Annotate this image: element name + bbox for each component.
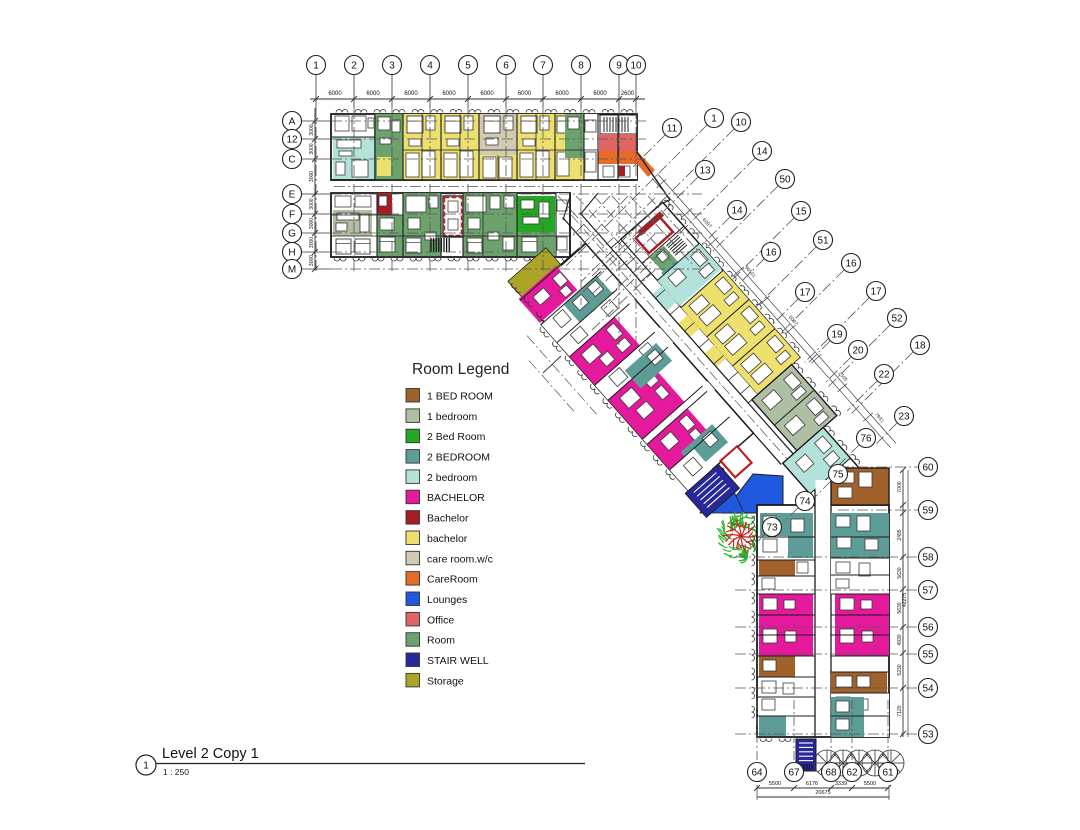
svg-text:7120: 7120 — [897, 705, 903, 716]
svg-text:76: 76 — [860, 434, 872, 445]
svg-text:53: 53 — [922, 730, 934, 741]
svg-text:62: 62 — [846, 768, 858, 779]
svg-text:4: 4 — [427, 61, 433, 72]
svg-text:BACHELOR: BACHELOR — [427, 492, 485, 504]
svg-text:1 bedroom: 1 bedroom — [427, 411, 477, 423]
svg-text:Lounges: Lounges — [427, 594, 467, 606]
svg-text:6000: 6000 — [442, 91, 456, 97]
svg-text:64: 64 — [751, 768, 763, 779]
svg-text:74: 74 — [799, 497, 811, 508]
svg-text:6000: 6000 — [593, 91, 607, 97]
svg-text:68: 68 — [825, 768, 837, 779]
svg-text:3339: 3339 — [835, 781, 847, 787]
svg-text:3: 3 — [389, 61, 395, 72]
svg-text:14: 14 — [731, 206, 743, 217]
svg-text:6000: 6000 — [555, 91, 569, 97]
svg-text:10: 10 — [735, 118, 747, 129]
svg-text:16: 16 — [845, 259, 857, 270]
svg-text:STAIR WELL: STAIR WELL — [427, 655, 489, 667]
svg-text:Storage: Storage — [427, 675, 464, 687]
svg-text:51: 51 — [817, 236, 829, 247]
svg-text:2 BEDROOM: 2 BEDROOM — [427, 452, 490, 464]
svg-text:H: H — [288, 248, 295, 259]
svg-text:2495: 2495 — [897, 529, 903, 540]
svg-text:67: 67 — [788, 768, 800, 779]
svg-text:52: 52 — [891, 314, 903, 325]
svg-text:11: 11 — [667, 124, 678, 135]
svg-text:12: 12 — [286, 135, 298, 146]
svg-text:60: 60 — [922, 463, 934, 474]
svg-text:1: 1 — [711, 114, 717, 125]
svg-text:50: 50 — [779, 175, 791, 186]
svg-text:15: 15 — [795, 207, 807, 218]
svg-text:55: 55 — [922, 650, 934, 661]
svg-text:5630: 5630 — [897, 567, 903, 578]
svg-text:F: F — [289, 210, 295, 221]
svg-text:18: 18 — [914, 341, 926, 352]
svg-text:22: 22 — [878, 370, 890, 381]
svg-text:1: 1 — [143, 761, 149, 772]
svg-text:23: 23 — [898, 412, 910, 423]
svg-text:3000: 3000 — [309, 143, 315, 154]
svg-text:57: 57 — [922, 586, 934, 597]
svg-text:1 BED ROOM: 1 BED ROOM — [427, 391, 493, 403]
svg-text:A: A — [289, 117, 296, 128]
svg-text:8: 8 — [578, 61, 584, 72]
svg-text:3000: 3000 — [309, 218, 315, 229]
svg-text:3000: 3000 — [309, 124, 315, 135]
svg-text:17: 17 — [799, 288, 811, 299]
svg-text:59: 59 — [922, 506, 934, 517]
svg-text:54: 54 — [922, 684, 934, 695]
svg-text:3000: 3000 — [309, 171, 315, 182]
svg-text:20: 20 — [852, 346, 864, 357]
svg-text:2: 2 — [351, 61, 357, 72]
svg-text:CareRoom: CareRoom — [427, 574, 478, 586]
svg-text:Room: Room — [427, 635, 455, 647]
svg-text:17: 17 — [870, 287, 882, 298]
svg-text:6176: 6176 — [806, 781, 818, 787]
svg-text:75: 75 — [832, 470, 844, 481]
svg-text:7000: 7000 — [897, 481, 903, 492]
svg-text:16: 16 — [765, 248, 777, 259]
svg-text:73: 73 — [766, 523, 778, 534]
svg-text:care room.w/c: care room.w/c — [427, 553, 493, 565]
svg-text:9: 9 — [616, 61, 622, 72]
svg-text:1: 1 — [313, 61, 319, 72]
svg-text:19: 19 — [831, 330, 843, 341]
svg-text:14: 14 — [756, 147, 768, 158]
svg-text:5500: 5500 — [769, 781, 781, 787]
svg-text:Bachelor: Bachelor — [427, 513, 469, 525]
svg-text:13: 13 — [699, 166, 711, 177]
svg-text:61: 61 — [882, 768, 894, 779]
svg-text:5: 5 — [465, 61, 471, 72]
svg-text:20675: 20675 — [815, 790, 830, 796]
svg-text:6000: 6000 — [518, 91, 532, 97]
svg-text:E: E — [289, 190, 296, 201]
svg-text:4930: 4930 — [897, 634, 903, 645]
svg-text:6000: 6000 — [404, 91, 418, 97]
svg-text:5500: 5500 — [864, 781, 876, 787]
svg-text:42275: 42275 — [902, 593, 908, 607]
svg-text:Room Legend: Room Legend — [412, 361, 509, 378]
svg-text:C: C — [288, 155, 295, 166]
svg-text:3000: 3000 — [309, 255, 315, 266]
svg-text:56: 56 — [922, 623, 934, 634]
svg-text:7: 7 — [540, 61, 546, 72]
svg-text:58: 58 — [922, 553, 934, 564]
svg-text:Level 2 Copy 1: Level 2 Copy 1 — [162, 746, 259, 762]
svg-text:1 : 250: 1 : 250 — [163, 767, 189, 777]
svg-text:M: M — [288, 265, 296, 276]
svg-text:G: G — [288, 229, 296, 240]
svg-text:bachelor: bachelor — [427, 533, 468, 545]
svg-text:6000: 6000 — [480, 91, 494, 97]
svg-text:6000: 6000 — [328, 91, 342, 97]
svg-text:6000: 6000 — [366, 91, 380, 97]
svg-text:Office: Office — [427, 614, 454, 626]
svg-text:3000: 3000 — [309, 237, 315, 248]
svg-text:3000: 3000 — [309, 198, 315, 209]
svg-text:2 bedroom: 2 bedroom — [427, 472, 477, 484]
svg-text:2600: 2600 — [621, 91, 635, 97]
svg-text:2 Bed Room: 2 Bed Room — [427, 431, 486, 443]
svg-text:6: 6 — [503, 61, 509, 72]
svg-text:5230: 5230 — [897, 664, 903, 675]
svg-text:10: 10 — [630, 61, 642, 72]
